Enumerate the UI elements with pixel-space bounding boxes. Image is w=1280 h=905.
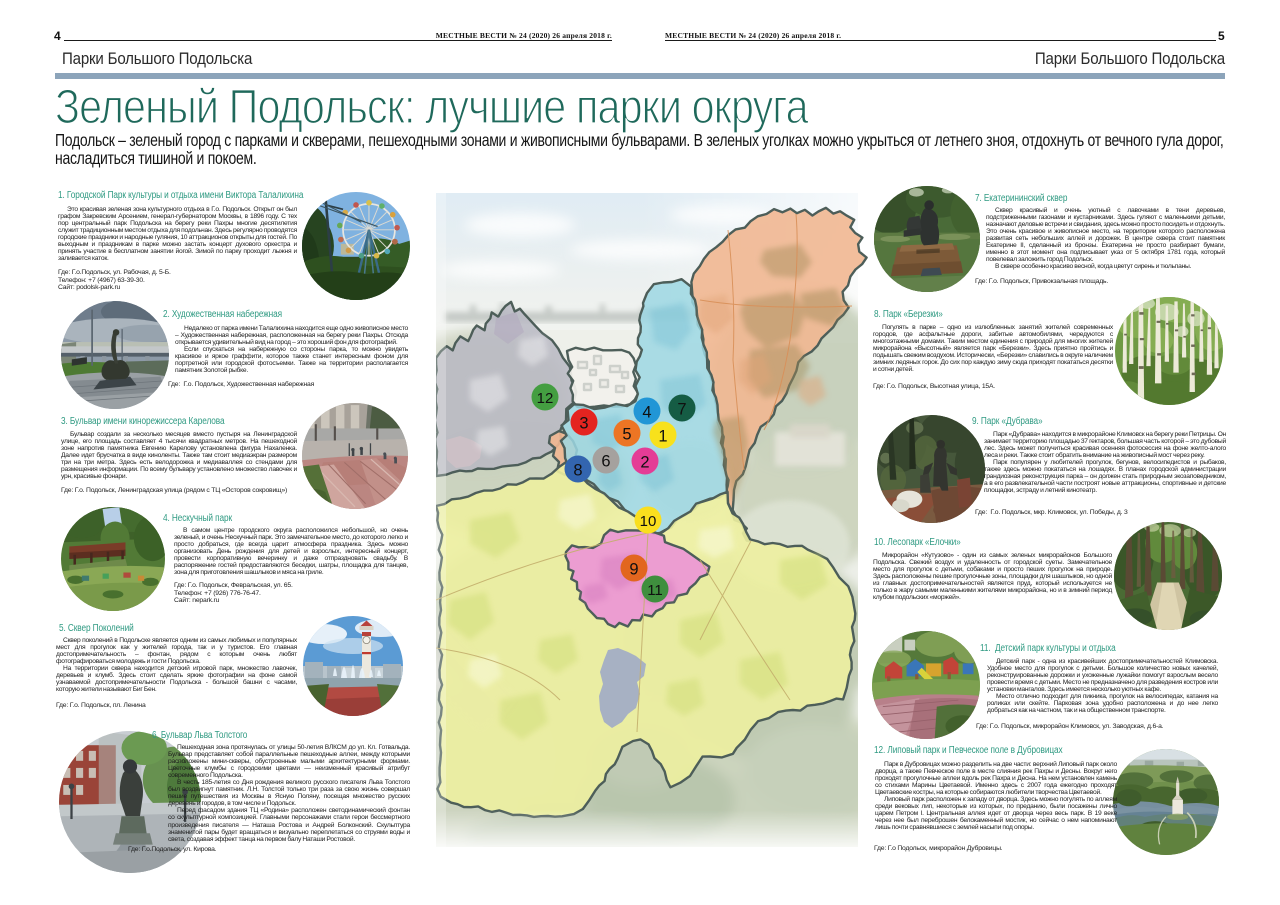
svg-text:5: 5 [622,426,631,444]
svg-text:2: 2 [640,454,649,472]
svg-text:8: 8 [573,462,582,480]
svg-text:4: 4 [642,404,651,422]
svg-text:10: 10 [640,513,657,530]
svg-text:3: 3 [579,415,588,433]
svg-text:12: 12 [537,390,554,407]
svg-text:9: 9 [629,561,638,579]
svg-text:7: 7 [677,401,686,419]
svg-text:6: 6 [601,453,610,471]
svg-text:1: 1 [658,428,667,446]
svg-text:11: 11 [647,582,663,599]
